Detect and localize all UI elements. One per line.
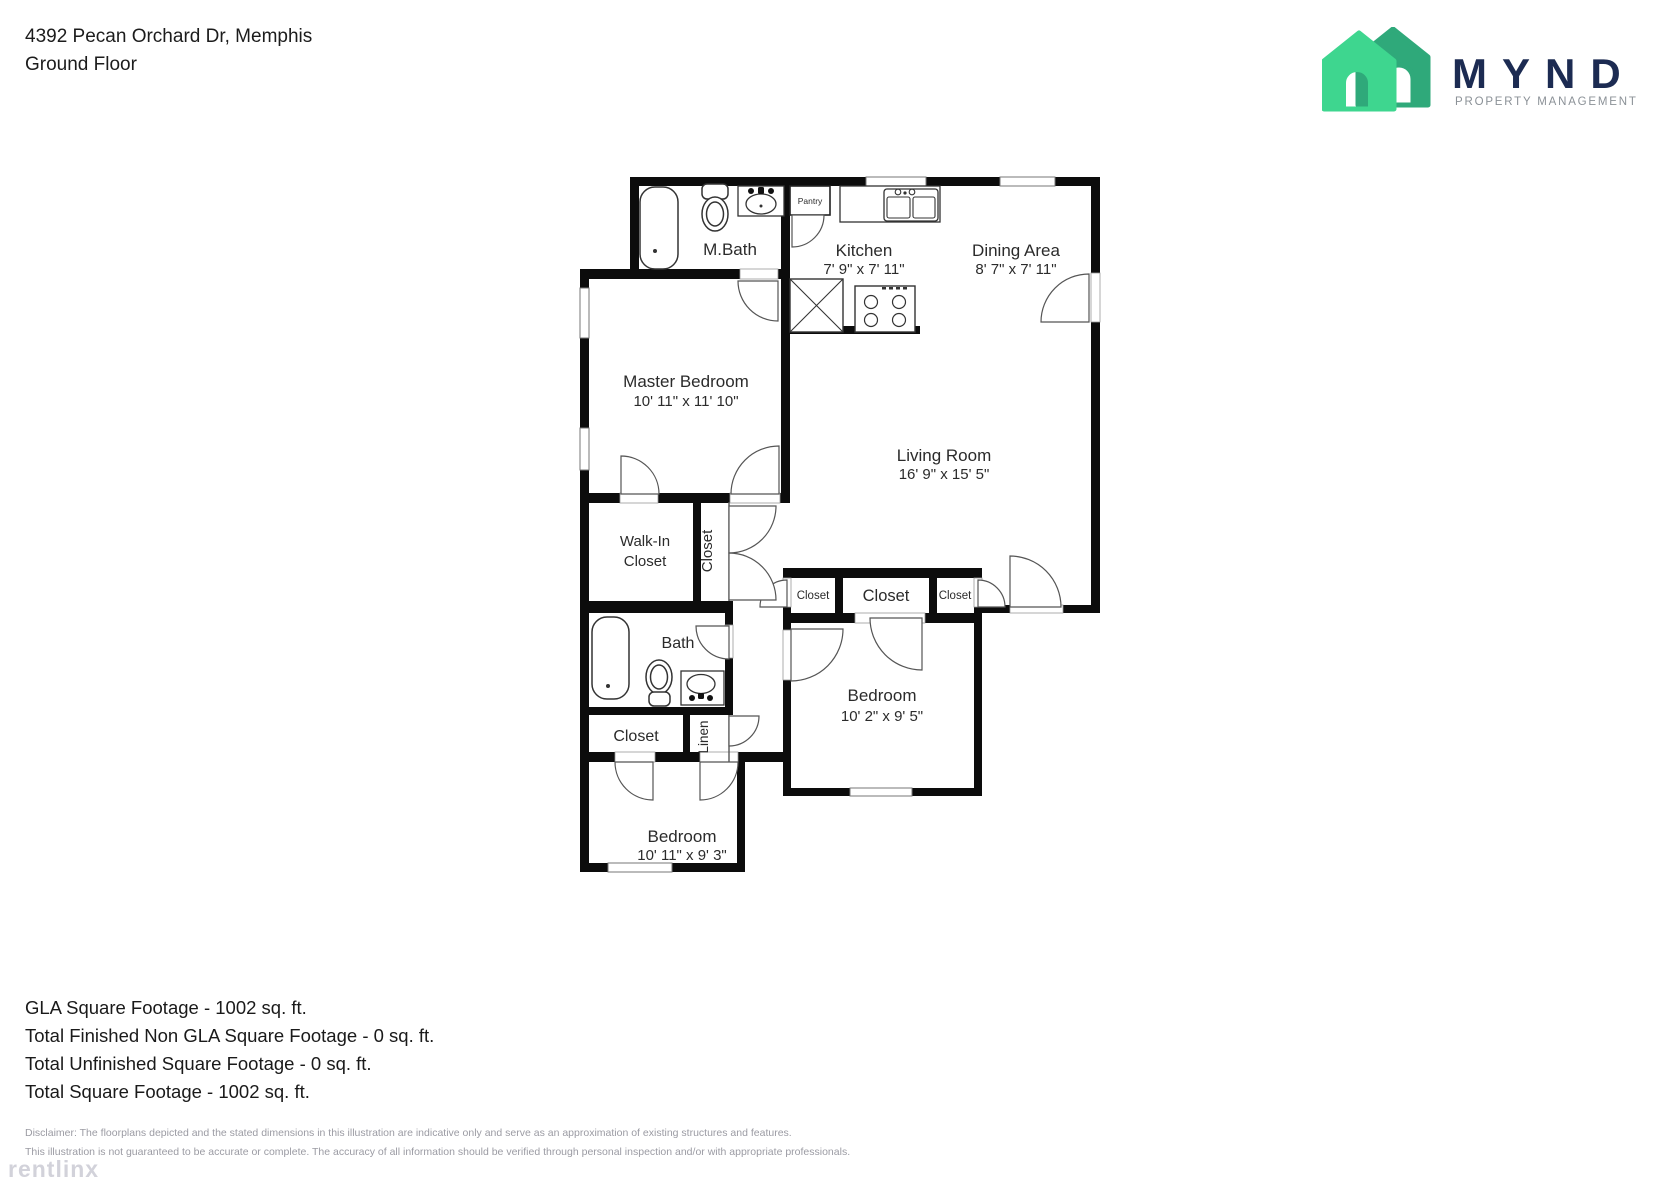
label-linen: Linen	[696, 720, 711, 753]
summary-total: Total Square Footage - 1002 sq. ft.	[25, 1078, 434, 1106]
door-pantry	[792, 215, 824, 247]
door-closet-to-bedroom3	[615, 762, 653, 800]
label-walkin-1: Walk-In	[620, 533, 670, 550]
label-mbath: M.Bath	[703, 240, 757, 259]
brand-wordmark: MYND	[1452, 53, 1636, 95]
floorplan-page: { "header": { "address": "4392 Pecan Orc…	[0, 0, 1680, 1188]
rentlinx-watermark: rentlinx	[8, 1156, 99, 1183]
label-closet-hall: Closet	[613, 728, 659, 745]
mbath-tub-drain	[653, 249, 657, 253]
label-master: Master Bedroom	[623, 372, 749, 391]
mbath-sink	[746, 194, 776, 214]
bath-toilet-base	[649, 692, 670, 706]
bath-sink	[687, 675, 715, 694]
mynd-logo-icon	[1322, 27, 1442, 113]
mbath-tub	[640, 187, 678, 269]
property-address: 4392 Pecan Orchard Dr, Memphis	[25, 26, 312, 48]
label-living-dims: 16' 9" x 15' 5"	[899, 466, 990, 483]
kitchen-stove	[855, 286, 915, 332]
label-dining-dims: 8' 7" x 7' 11"	[975, 261, 1056, 278]
label-dining: Dining Area	[972, 241, 1060, 260]
label-closet-left: Closet	[797, 590, 830, 602]
door-dining-exterior	[1041, 274, 1089, 322]
door-bath-entry	[696, 626, 729, 659]
door-mbath-to-master	[738, 281, 778, 321]
label-bedroom3: Bedroom	[648, 827, 717, 846]
label-kitchen-dims: 7' 9" x 7' 11"	[823, 261, 904, 278]
label-bedroom2-dims: 10' 2" x 9' 5"	[841, 708, 923, 725]
door-master-entry	[731, 446, 779, 494]
door-closet-middle	[870, 618, 922, 670]
disclaimer: Disclaimer: The floorplans depicted and …	[25, 1124, 850, 1162]
door-bedroom3-entry	[700, 762, 738, 800]
label-closet-right: Closet	[939, 590, 972, 602]
label-bath: Bath	[662, 635, 695, 652]
label-bedroom3-dims: 10' 11" x 9' 3"	[637, 847, 727, 864]
door-walkin-closet	[621, 456, 659, 494]
door-living-exterior	[1010, 556, 1061, 607]
square-footage-summary: GLA Square Footage - 1002 sq. ft. Total …	[25, 994, 434, 1106]
door-linen	[729, 716, 759, 746]
bath-tub	[592, 617, 629, 699]
label-kitchen: Kitchen	[836, 241, 893, 260]
label-closet-middle: Closet	[863, 587, 910, 605]
label-bedroom2: Bedroom	[848, 686, 917, 705]
summary-gla: GLA Square Footage - 1002 sq. ft.	[25, 994, 434, 1022]
floor-label: Ground Floor	[25, 54, 137, 76]
label-pantry: Pantry	[798, 196, 823, 206]
summary-unfinished: Total Unfinished Square Footage - 0 sq. …	[25, 1050, 434, 1078]
door-hall-closet-bottom	[729, 553, 776, 600]
floorplan-drawing: M.Bath Pantry Kitchen 7' 9" x 7' 11" Din…	[575, 172, 1105, 880]
label-closet-vertical: Closet	[699, 529, 716, 572]
door-closet-right	[978, 580, 1005, 607]
summary-non-gla: Total Finished Non GLA Square Footage - …	[25, 1022, 434, 1050]
label-master-dims: 10' 11" x 11' 10"	[633, 393, 738, 410]
bath-tub-drain	[606, 684, 610, 688]
disclaimer-line-1: Disclaimer: The floorplans depicted and …	[25, 1124, 850, 1143]
door-bedroom2-entry	[791, 629, 843, 681]
label-walkin-2: Closet	[624, 553, 667, 570]
brand-tagline: PROPERTY MANAGEMENT	[1455, 96, 1638, 108]
disclaimer-line-2: This illustration is not guaranteed to b…	[25, 1143, 850, 1162]
door-hall-closet-top	[729, 506, 776, 553]
label-living: Living Room	[897, 446, 992, 465]
